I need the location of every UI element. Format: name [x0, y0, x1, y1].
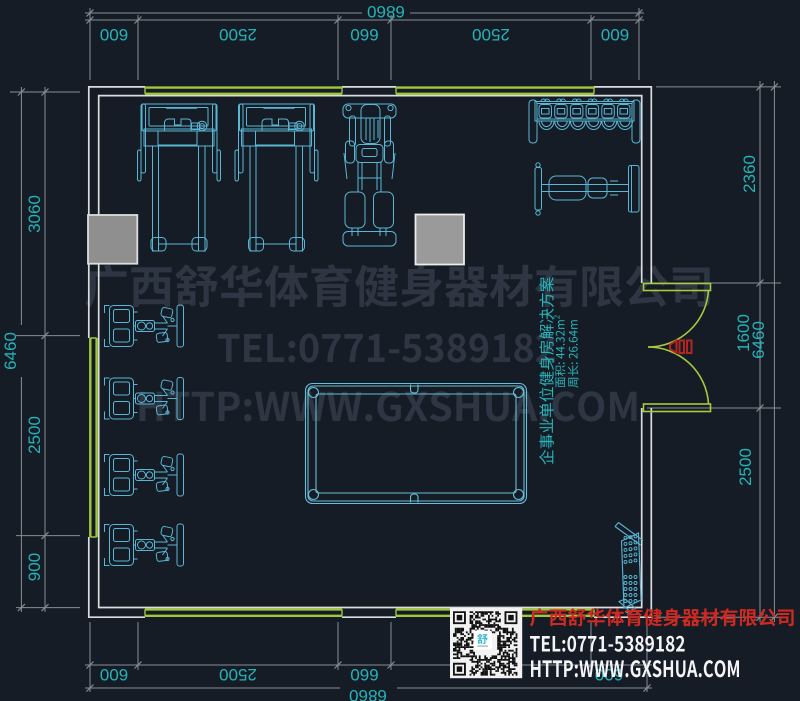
svg-text:2500: 2500 — [219, 665, 257, 684]
svg-text:6460: 6460 — [1, 332, 20, 370]
svg-text:6860: 6860 — [367, 2, 405, 21]
svg-text:6860: 6860 — [349, 686, 387, 701]
svg-text:660: 660 — [350, 665, 378, 684]
svg-text:2500: 2500 — [219, 25, 257, 44]
svg-text:2500: 2500 — [736, 448, 755, 486]
svg-text:600: 600 — [601, 25, 629, 44]
svg-text:2500: 2500 — [472, 25, 510, 44]
svg-text:2500: 2500 — [25, 416, 44, 454]
svg-text:660: 660 — [350, 25, 378, 44]
svg-text:3060: 3060 — [25, 195, 44, 233]
svg-text:6460: 6460 — [749, 321, 768, 359]
svg-text:600: 600 — [100, 25, 128, 44]
svg-text:600: 600 — [100, 665, 128, 684]
svg-text:900: 900 — [25, 553, 44, 581]
svg-text:2360: 2360 — [740, 155, 759, 193]
